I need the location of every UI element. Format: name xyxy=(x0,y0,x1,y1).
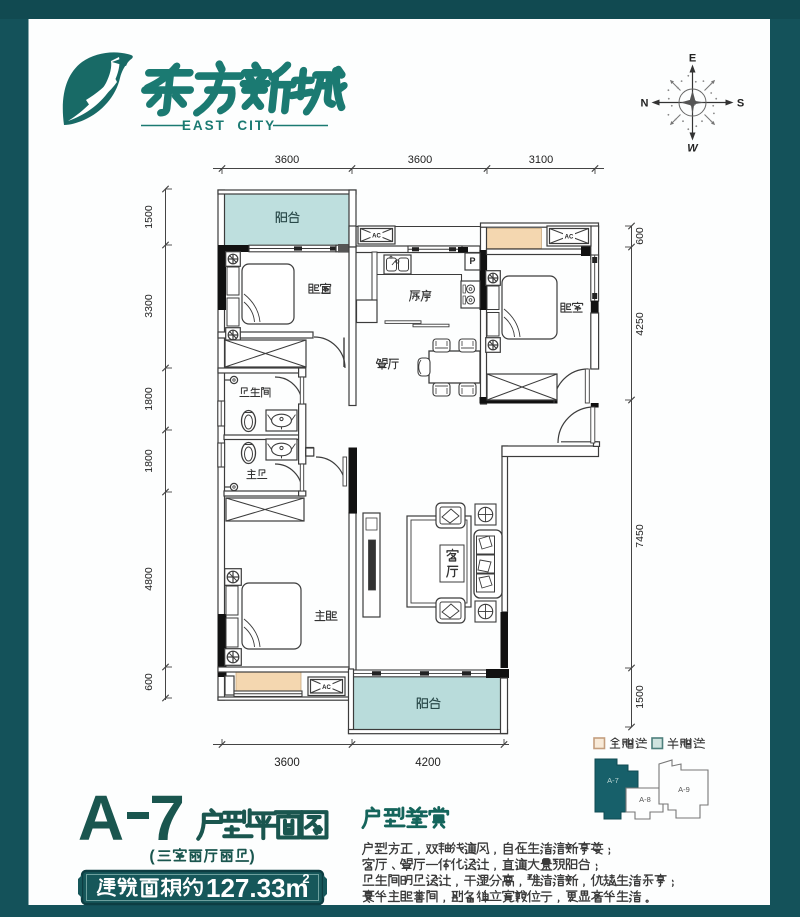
svg-text:A-7: A-7 xyxy=(607,776,619,785)
svg-text:3600: 3600 xyxy=(408,154,432,166)
svg-text:3300: 3300 xyxy=(143,294,155,318)
svg-text:1500: 1500 xyxy=(143,205,155,229)
svg-text:1800: 1800 xyxy=(143,387,155,411)
svg-text:127.33m: 127.33m xyxy=(206,873,309,903)
svg-text:7450: 7450 xyxy=(634,524,646,548)
svg-text:A-9: A-9 xyxy=(678,785,690,794)
svg-text:7: 7 xyxy=(149,782,185,854)
svg-text:4200: 4200 xyxy=(415,757,441,769)
svg-text:P: P xyxy=(469,256,475,266)
svg-text:E: E xyxy=(689,53,696,65)
svg-text:4250: 4250 xyxy=(634,312,646,336)
svg-text:EAST CITY: EAST CITY xyxy=(182,118,276,133)
svg-text:S: S xyxy=(737,98,744,110)
svg-text:600: 600 xyxy=(143,673,155,691)
svg-text:4800: 4800 xyxy=(143,567,155,591)
svg-text:1800: 1800 xyxy=(143,449,155,473)
svg-text:W: W xyxy=(687,143,699,155)
svg-text:AC: AC xyxy=(565,235,574,241)
svg-text:A-8: A-8 xyxy=(639,795,651,804)
svg-text:3100: 3100 xyxy=(529,154,553,166)
svg-text:A: A xyxy=(78,782,124,854)
svg-text:3600: 3600 xyxy=(275,154,299,166)
svg-text:1500: 1500 xyxy=(634,685,646,709)
svg-text:(: ( xyxy=(149,848,155,865)
svg-text:600: 600 xyxy=(634,227,646,245)
svg-text:2: 2 xyxy=(302,871,309,886)
svg-text:AC: AC xyxy=(322,685,331,691)
svg-text:N: N xyxy=(641,98,649,110)
svg-text:AC: AC xyxy=(372,234,381,240)
svg-text:): ) xyxy=(249,848,254,865)
svg-text:3600: 3600 xyxy=(274,757,300,769)
